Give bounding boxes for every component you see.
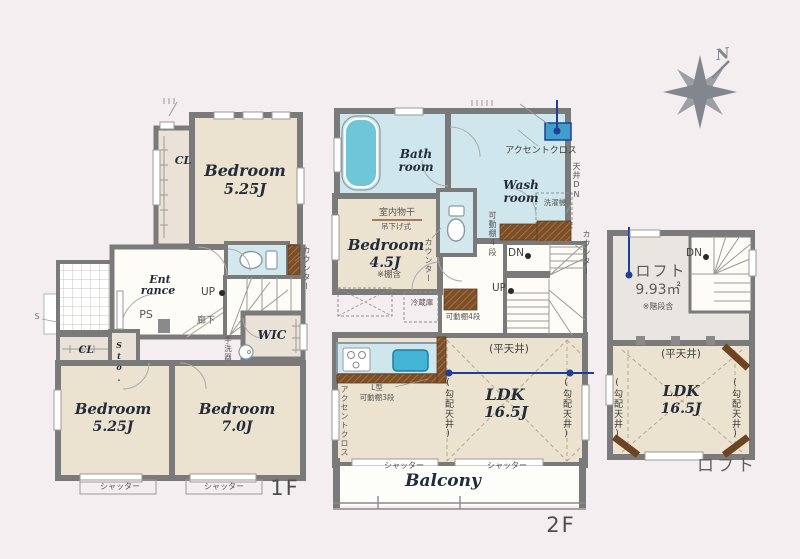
label-bedroom-right-area: 7.0J <box>222 420 253 434</box>
label-handwash: 手洗器 <box>224 336 232 362</box>
label-washer: 洗濯機 <box>544 199 567 207</box>
label-sensor: S <box>34 313 39 321</box>
label-bedroom-left-name: Bedroom <box>75 402 152 417</box>
label-shelf4-horizontal: 可動棚4段 <box>446 313 481 321</box>
label-balcony: Balcony <box>405 473 481 490</box>
label-cl-top: CL <box>175 155 192 166</box>
label-ldk-name-2f: LDK <box>485 387 524 403</box>
label-entrance-2: rance <box>141 285 176 296</box>
label-bedroom45-name: Bedroom <box>348 238 425 253</box>
label-bedroom-top-area: 5.25J <box>224 183 266 198</box>
label-accent-cloth-left: アクセントクロス <box>340 385 348 457</box>
label-bedroom-top-name: Bedroom <box>204 163 286 179</box>
label-wash-1: Wash <box>503 179 539 191</box>
floor-label-2f: 2F <box>546 515 575 536</box>
label-ps: PS <box>139 309 153 320</box>
label-flat-ceiling-2f: (平天井) <box>489 344 529 355</box>
label-shutter-1f-left: シャッター <box>100 483 140 491</box>
label-flat-ceiling-loft: (平天井) <box>661 349 701 360</box>
label-l-shape: L型 <box>371 384 383 392</box>
label-up-1f: UP <box>201 287 215 298</box>
label-ldk-area-loft: 16.5J <box>661 402 702 416</box>
label-bedroom45-area: 4.5J <box>370 256 401 270</box>
label-indoor-drying: 室内物干 <box>379 209 415 218</box>
label-loft-stairs-note: ※階段含 <box>643 303 674 311</box>
label-loft-area: 9.93㎡ <box>635 283 680 297</box>
label-shelf3: 可動棚3段 <box>360 394 395 402</box>
label-counter-mid: カウンター <box>424 238 432 283</box>
label-shelf4-vertical: 可動棚4段 <box>488 211 496 257</box>
label-ldk-name-loft: LDK <box>663 384 700 399</box>
label-dn-loft: DN <box>686 248 702 259</box>
label-ceiling-dn: 天井DN <box>572 162 580 200</box>
compass-north-label: N <box>715 46 731 63</box>
floorplan-canvas: CL Bedroom 5.25J Ent rance PS UP 廊下 カウンタ… <box>0 0 800 559</box>
label-cl-bottom: CL <box>79 346 94 356</box>
label-wash-2: room <box>503 192 538 204</box>
label-hanging-type: 吊下げ式 <box>381 223 411 231</box>
label-counter-1f: カウンター <box>302 246 310 291</box>
label-bedroom-left-area: 5.25J <box>93 420 134 434</box>
label-sloped-ceiling-right-loft: (勾配天井) <box>730 378 739 440</box>
label-shutter-2f-right: シャッター <box>487 462 527 470</box>
label-accent-cloth-top: アクセントクロス <box>505 147 577 156</box>
label-counter-right-2f: カウンター <box>582 230 590 275</box>
compass-icon <box>663 55 737 129</box>
label-fridge: 冷蔵庫 <box>411 299 434 307</box>
floor-label-loft: ロフト <box>697 458 757 475</box>
label-loft-title: ロフト <box>635 264 686 279</box>
label-sloped-ceiling-left-loft: (勾配天井) <box>612 378 621 440</box>
label-shelf-note: ※棚含 <box>377 271 401 280</box>
label-ldk-area-2f: 16.5J <box>484 405 528 420</box>
label-sloped-ceiling-left-2f: (勾配天井) <box>443 378 452 440</box>
label-sloped-ceiling-right-2f: (勾配天井) <box>561 378 570 440</box>
plan-2f-structure <box>332 100 594 509</box>
label-bedroom-right-name: Bedroom <box>199 402 276 417</box>
label-bath-1: Bath <box>400 148 432 160</box>
label-dn-2f: DN <box>508 248 524 259</box>
label-shutter-2f-left: シャッター <box>384 462 424 470</box>
floor-label-1f: 1F <box>270 478 299 499</box>
label-storage: Sto. <box>115 340 123 384</box>
label-up-2f: UP <box>492 283 506 294</box>
label-hallway: 廊下 <box>197 317 215 326</box>
label-shutter-1f-right: シャッター <box>204 483 244 491</box>
label-wic: WIC <box>258 329 287 341</box>
label-bath-2: room <box>398 161 433 173</box>
